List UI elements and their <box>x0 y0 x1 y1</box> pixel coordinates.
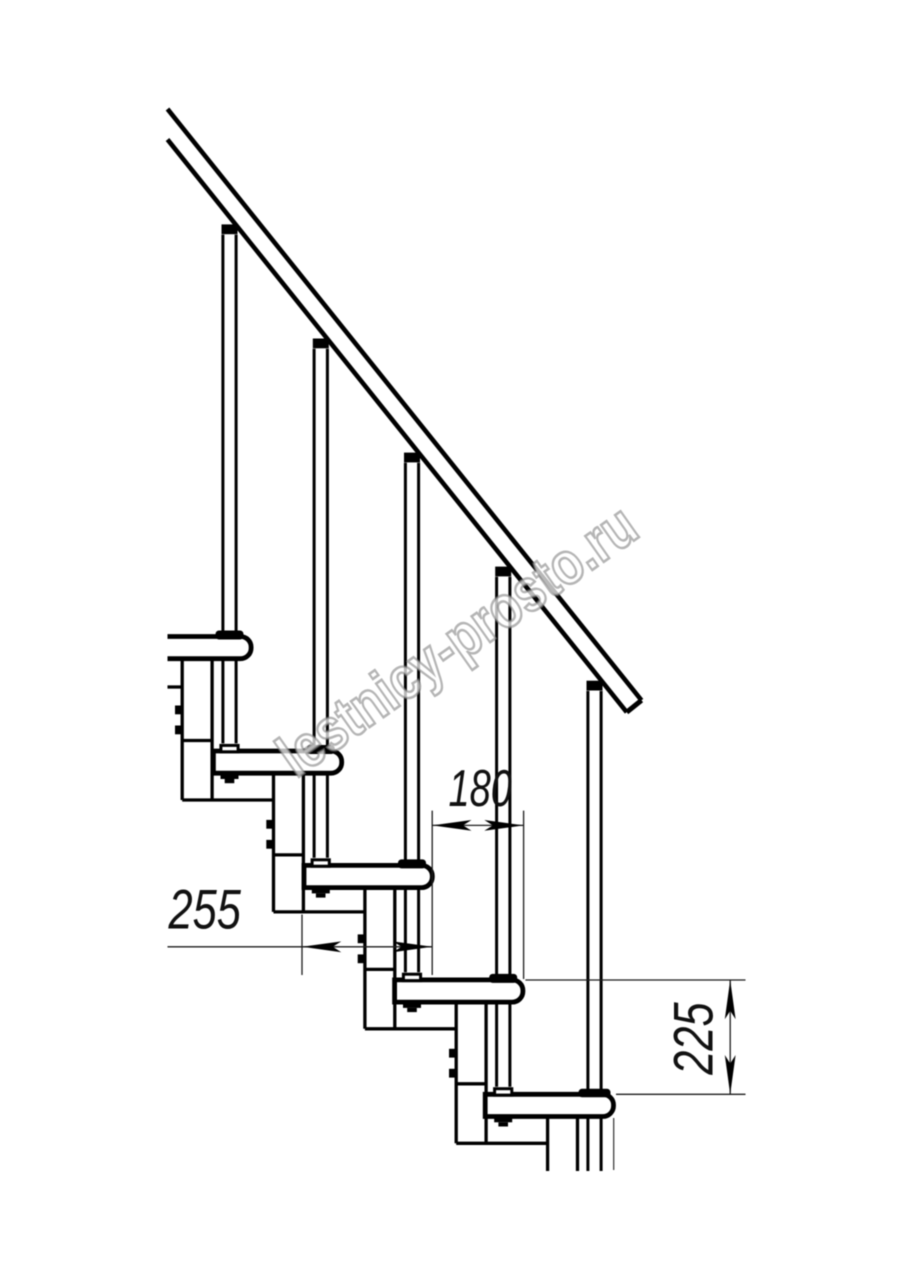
svg-text:225: 225 <box>662 1002 725 1075</box>
svg-text:180: 180 <box>449 759 512 817</box>
svg-text:255: 255 <box>168 878 241 941</box>
